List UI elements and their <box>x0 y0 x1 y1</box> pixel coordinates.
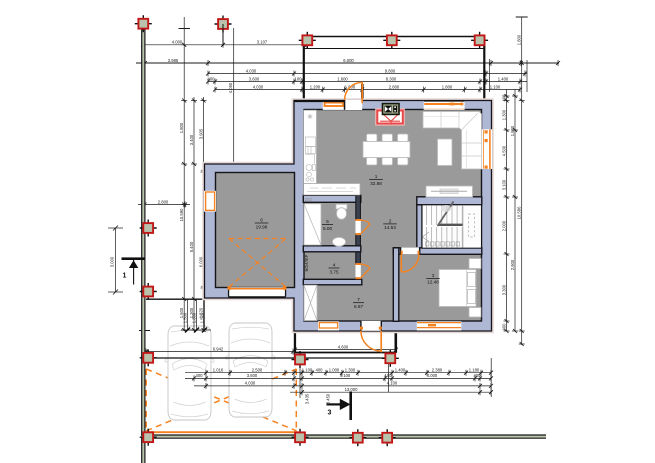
svg-text:8.300: 8.300 <box>386 76 397 81</box>
svg-text:4.050: 4.050 <box>228 82 233 93</box>
svg-text:6.97: 6.97 <box>354 304 364 309</box>
svg-text:2: 2 <box>389 218 392 223</box>
svg-text:6: 6 <box>260 218 263 223</box>
svg-text:2.000: 2.000 <box>501 220 506 231</box>
svg-text:1.100: 1.100 <box>302 368 313 373</box>
svg-text:19.98: 19.98 <box>256 224 268 229</box>
svg-text:400: 400 <box>501 94 506 102</box>
svg-text:1: 1 <box>375 174 378 179</box>
svg-text:4.600: 4.600 <box>338 344 349 349</box>
svg-text:3.000: 3.000 <box>110 256 115 267</box>
svg-text:1.300: 1.300 <box>345 368 356 373</box>
svg-text:2.800: 2.800 <box>389 84 400 89</box>
svg-text:5: 5 <box>326 219 329 224</box>
svg-text:7: 7 <box>357 297 360 302</box>
svg-text:1.200: 1.200 <box>310 84 321 89</box>
svg-text:400: 400 <box>196 373 204 378</box>
svg-text:1.800: 1.800 <box>179 122 184 133</box>
svg-text:3.75: 3.75 <box>329 269 339 274</box>
svg-text:1: 1 <box>123 273 127 280</box>
svg-text:14.53: 14.53 <box>384 225 396 230</box>
svg-text:10.586: 10.586 <box>517 206 522 219</box>
svg-text:2.800: 2.800 <box>158 199 169 204</box>
svg-text:2.900: 2.900 <box>510 259 515 270</box>
svg-text:400: 400 <box>474 373 482 378</box>
svg-text:БОЙЛЕР: БОЙЛЕР <box>304 254 309 271</box>
svg-text:4.030: 4.030 <box>246 68 257 73</box>
svg-text:1.520: 1.520 <box>200 312 205 323</box>
svg-text:3.600: 3.600 <box>247 373 258 378</box>
svg-text:3.450: 3.450 <box>326 393 331 404</box>
svg-text:1.800: 1.800 <box>517 34 522 45</box>
svg-text:4.500: 4.500 <box>501 145 506 156</box>
svg-text:1.800: 1.800 <box>442 84 453 89</box>
svg-text:3.400: 3.400 <box>189 134 194 145</box>
svg-text:2.380: 2.380 <box>432 368 443 373</box>
svg-text:1.600: 1.600 <box>337 76 348 81</box>
svg-text:4.000: 4.000 <box>172 40 183 45</box>
svg-text:3.107: 3.107 <box>257 40 268 45</box>
svg-text:3.905: 3.905 <box>198 128 203 139</box>
svg-text:1.180: 1.180 <box>469 368 480 373</box>
svg-text:3.300: 3.300 <box>501 284 506 295</box>
svg-text:3.600: 3.600 <box>249 76 260 81</box>
svg-text:1.000: 1.000 <box>329 368 340 373</box>
svg-text:4.030: 4.030 <box>245 381 256 386</box>
svg-text:3: 3 <box>328 410 332 417</box>
svg-text:3: 3 <box>432 273 435 278</box>
svg-text:100: 100 <box>295 76 303 81</box>
svg-text:1.400: 1.400 <box>498 76 509 81</box>
svg-text:32.88: 32.88 <box>370 181 382 186</box>
svg-text:10.590: 10.590 <box>179 208 184 221</box>
svg-text:4.000: 4.000 <box>427 373 438 378</box>
svg-text:1.100: 1.100 <box>490 84 501 89</box>
svg-text:6.000: 6.000 <box>343 58 354 63</box>
svg-text:1.500: 1.500 <box>183 312 188 323</box>
svg-text:1.400: 1.400 <box>395 368 406 373</box>
svg-text:12.48: 12.48 <box>427 280 439 285</box>
svg-text:400: 400 <box>501 323 506 331</box>
svg-text:4.100: 4.100 <box>340 373 351 378</box>
svg-text:13.000: 13.000 <box>345 387 358 392</box>
svg-text:3.985: 3.985 <box>168 58 179 63</box>
svg-text:5.00: 5.00 <box>323 226 333 231</box>
svg-text:4: 4 <box>333 263 336 268</box>
svg-text:9.800: 9.800 <box>385 68 396 73</box>
svg-text:1.800: 1.800 <box>510 125 515 136</box>
svg-text:3.435: 3.435 <box>305 393 310 404</box>
svg-text:6.942: 6.942 <box>213 346 224 351</box>
svg-text:400: 400 <box>208 76 216 81</box>
svg-text:3.100: 3.100 <box>501 179 506 190</box>
svg-text:1.016: 1.016 <box>213 368 224 373</box>
svg-text:1.300: 1.300 <box>192 312 197 323</box>
svg-text:5.400: 5.400 <box>189 241 194 252</box>
svg-text:400: 400 <box>316 368 324 373</box>
svg-text:1.300: 1.300 <box>501 109 506 120</box>
svg-text:2.500: 2.500 <box>252 368 263 373</box>
svg-text:4.030: 4.030 <box>253 84 264 89</box>
